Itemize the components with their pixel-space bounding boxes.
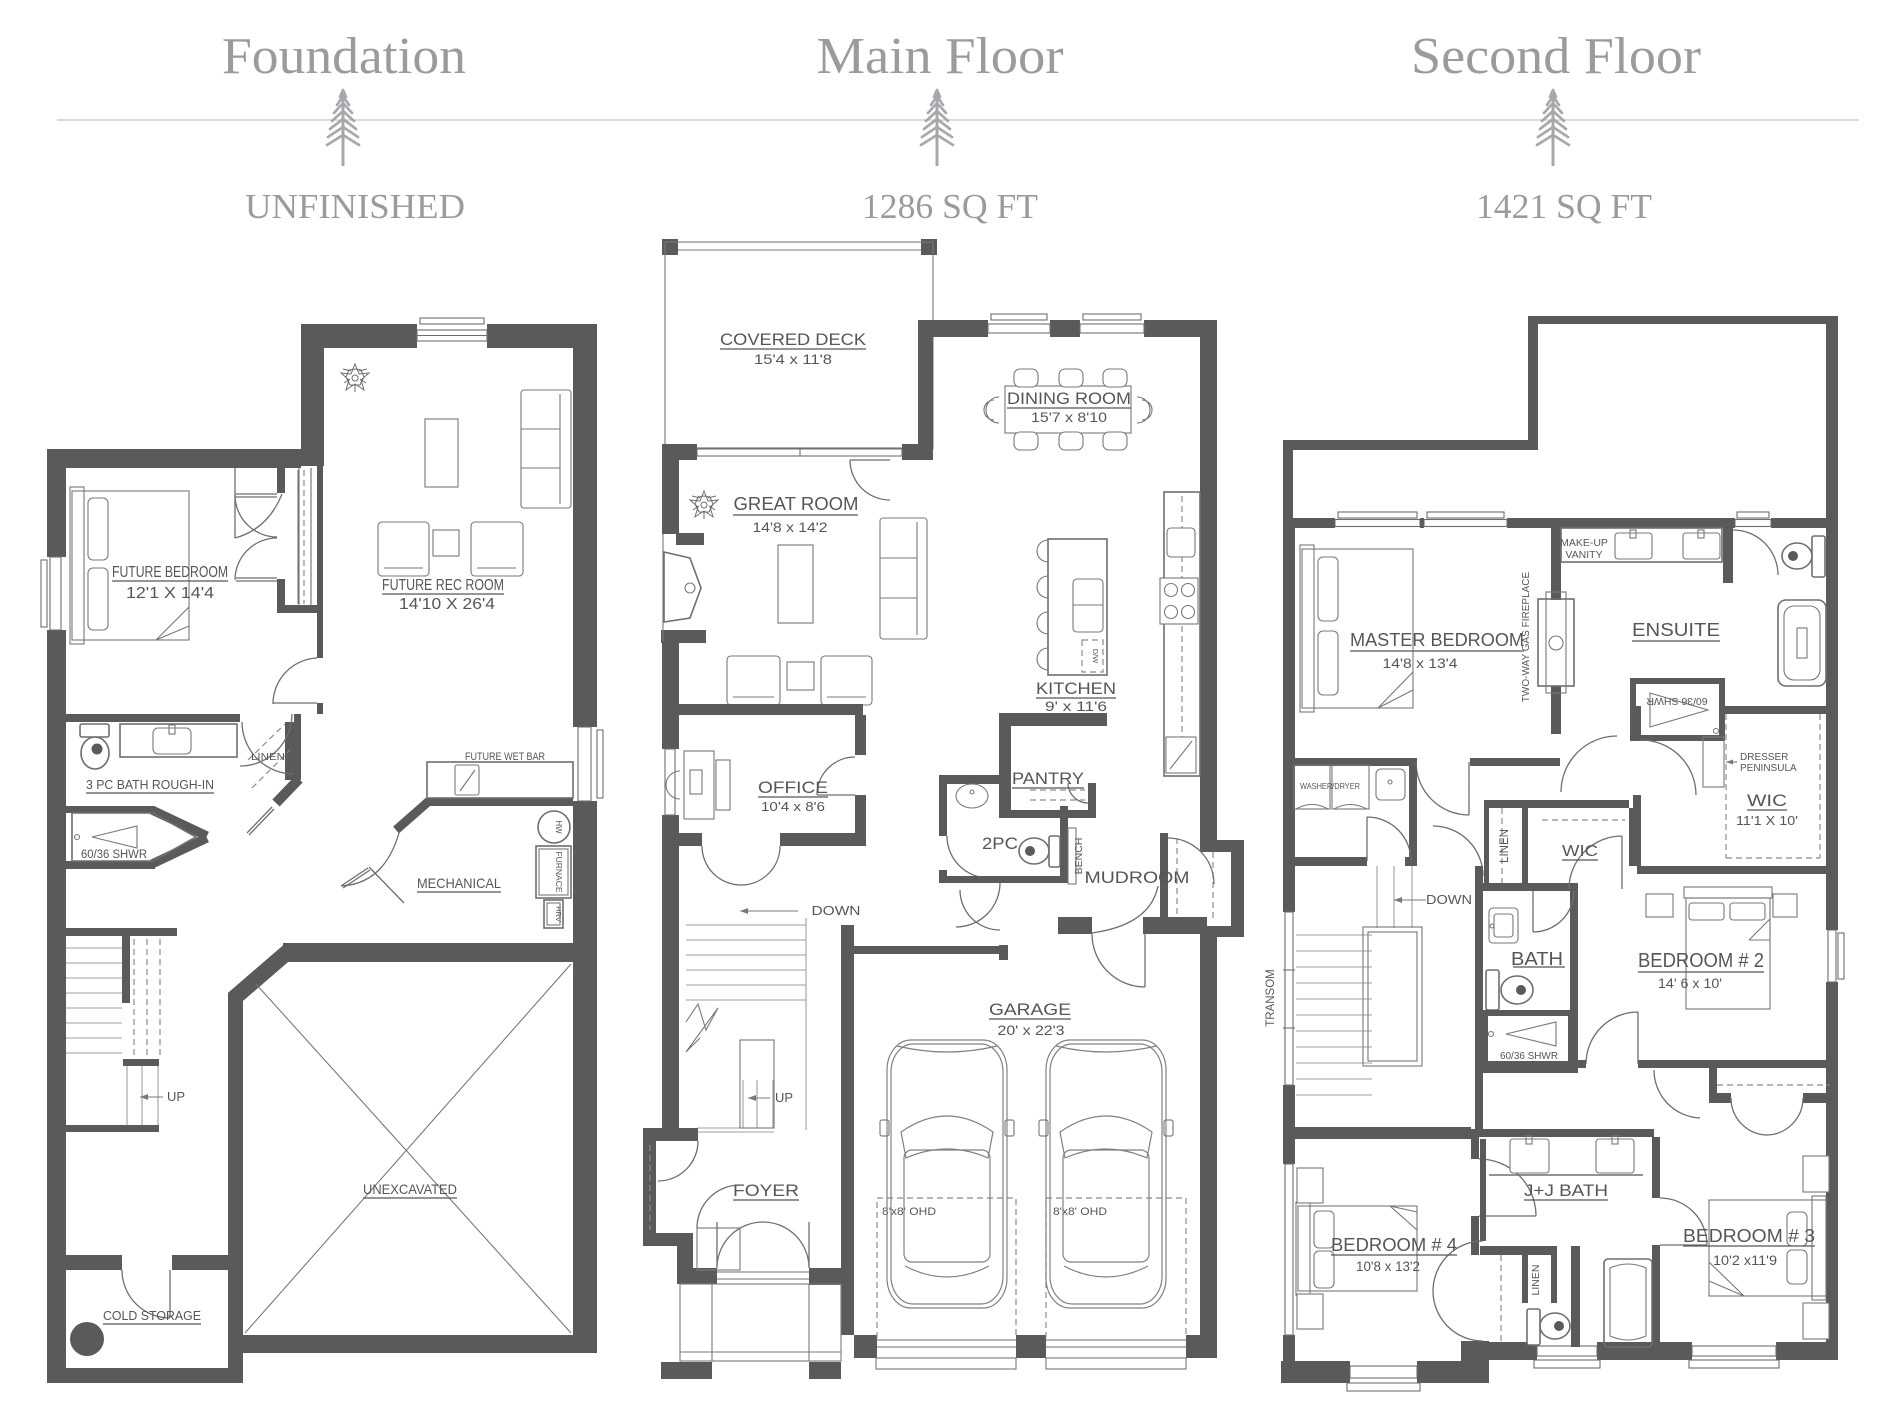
svg-text:BENCH: BENCH (1073, 838, 1085, 875)
svg-text:BEDROOM # 2: BEDROOM # 2 (1638, 950, 1764, 972)
svg-text:9' x 11'6: 9' x 11'6 (1045, 699, 1107, 714)
svg-text:60/36 SHWR: 60/36 SHWR (1646, 695, 1708, 707)
svg-text:1286 SQ FT: 1286 SQ FT (862, 187, 1038, 226)
svg-text:MECHANICAL: MECHANICAL (417, 875, 501, 891)
svg-text:LINEN: LINEN (1499, 829, 1511, 863)
svg-text:BEDROOM # 4: BEDROOM # 4 (1331, 1234, 1457, 1255)
svg-text:MASTER BEDROOM: MASTER BEDROOM (1350, 630, 1524, 650)
svg-text:2PC: 2PC (982, 835, 1018, 853)
svg-text:VANITY: VANITY (1565, 549, 1602, 561)
svg-text:10'8 x 13'2: 10'8 x 13'2 (1356, 1259, 1420, 1274)
svg-text:PANTRY: PANTRY (1012, 770, 1084, 788)
svg-text:14'8 x 14'2: 14'8 x 14'2 (753, 520, 828, 535)
svg-text:BATH: BATH (1511, 949, 1563, 969)
svg-text:GREAT ROOM: GREAT ROOM (734, 494, 859, 514)
svg-text:60/36 SHWR: 60/36 SHWR (1500, 1050, 1558, 1062)
svg-text:15'4 x 11'8: 15'4 x 11'8 (754, 352, 832, 367)
svg-text:DINING ROOM: DINING ROOM (1007, 390, 1131, 408)
svg-text:DOWN: DOWN (812, 903, 861, 918)
svg-text:LINEN: LINEN (1530, 1265, 1542, 1296)
svg-text:15'7 x 8'10: 15'7 x 8'10 (1031, 410, 1107, 425)
svg-text:UNEXCAVATED: UNEXCAVATED (363, 1181, 457, 1197)
svg-text:LINEN: LINEN (251, 751, 285, 763)
svg-text:FUTURE BEDROOM: FUTURE BEDROOM (112, 564, 228, 581)
svg-text:3 PC BATH ROUGH-IN: 3 PC BATH ROUGH-IN (86, 777, 214, 792)
svg-text:12'1 X 14'4: 12'1 X 14'4 (126, 585, 214, 602)
svg-text:BEDROOM # 3: BEDROOM # 3 (1683, 1225, 1815, 1246)
svg-text:D/W: D/W (1091, 649, 1100, 665)
svg-text:1421 SQ FT: 1421 SQ FT (1476, 187, 1652, 226)
svg-text:PENINSULA: PENINSULA (1740, 763, 1797, 774)
svg-text:J+J BATH: J+J BATH (1524, 1181, 1608, 1200)
svg-text:60/36 SHWR: 60/36 SHWR (81, 849, 147, 861)
svg-text:WIC: WIC (1747, 791, 1787, 810)
svg-text:UP: UP (167, 1089, 185, 1104)
svg-text:FUTURE WET BAR: FUTURE WET BAR (465, 751, 545, 763)
svg-text:Second Floor: Second Floor (1411, 28, 1701, 85)
svg-text:HW: HW (554, 820, 563, 834)
svg-text:11'1 X 10': 11'1 X 10' (1736, 813, 1798, 828)
svg-text:10'4 x 8'6: 10'4 x 8'6 (761, 799, 825, 814)
svg-text:HRV: HRV (554, 906, 563, 922)
svg-text:8'x8' OHD: 8'x8' OHD (882, 1206, 936, 1218)
svg-text:UNFINISHED: UNFINISHED (245, 187, 465, 226)
svg-text:FUTURE REC ROOM: FUTURE REC ROOM (382, 577, 504, 594)
svg-text:DRESSER: DRESSER (1740, 752, 1788, 763)
svg-text:WASHER/DRYER: WASHER/DRYER (1300, 781, 1360, 791)
svg-text:14'10 X 26'4: 14'10 X 26'4 (399, 596, 495, 613)
svg-text:Foundation: Foundation (222, 28, 466, 85)
svg-text:14' 6 x 10': 14' 6 x 10' (1658, 976, 1722, 991)
svg-text:KITCHEN: KITCHEN (1036, 679, 1116, 698)
svg-text:ENSUITE: ENSUITE (1632, 620, 1720, 640)
svg-text:GARAGE: GARAGE (989, 1000, 1071, 1019)
svg-text:OFFICE: OFFICE (758, 779, 828, 797)
svg-text:FURNACE: FURNACE (554, 851, 564, 892)
svg-text:DOWN: DOWN (1426, 892, 1472, 907)
svg-text:10'2 x11'9: 10'2 x11'9 (1713, 1253, 1777, 1268)
svg-text:TRANSOM: TRANSOM (1265, 969, 1277, 1027)
svg-text:MAKE-UP: MAKE-UP (1560, 537, 1608, 549)
svg-text:COLD STORAGE: COLD STORAGE (103, 1308, 201, 1323)
svg-text:14'8 x 13'4: 14'8 x 13'4 (1383, 656, 1459, 671)
svg-text:20' x 22'3: 20' x 22'3 (998, 1023, 1065, 1038)
svg-text:MUDROOM: MUDROOM (1085, 869, 1190, 887)
svg-text:UP: UP (775, 1090, 793, 1105)
svg-text:8'x8' OHD: 8'x8' OHD (1053, 1206, 1107, 1218)
svg-text:Main Floor: Main Floor (817, 28, 1064, 85)
svg-text:COVERED DECK: COVERED DECK (720, 331, 866, 349)
svg-text:FOYER: FOYER (733, 1182, 799, 1200)
svg-text:WIC: WIC (1562, 843, 1598, 860)
